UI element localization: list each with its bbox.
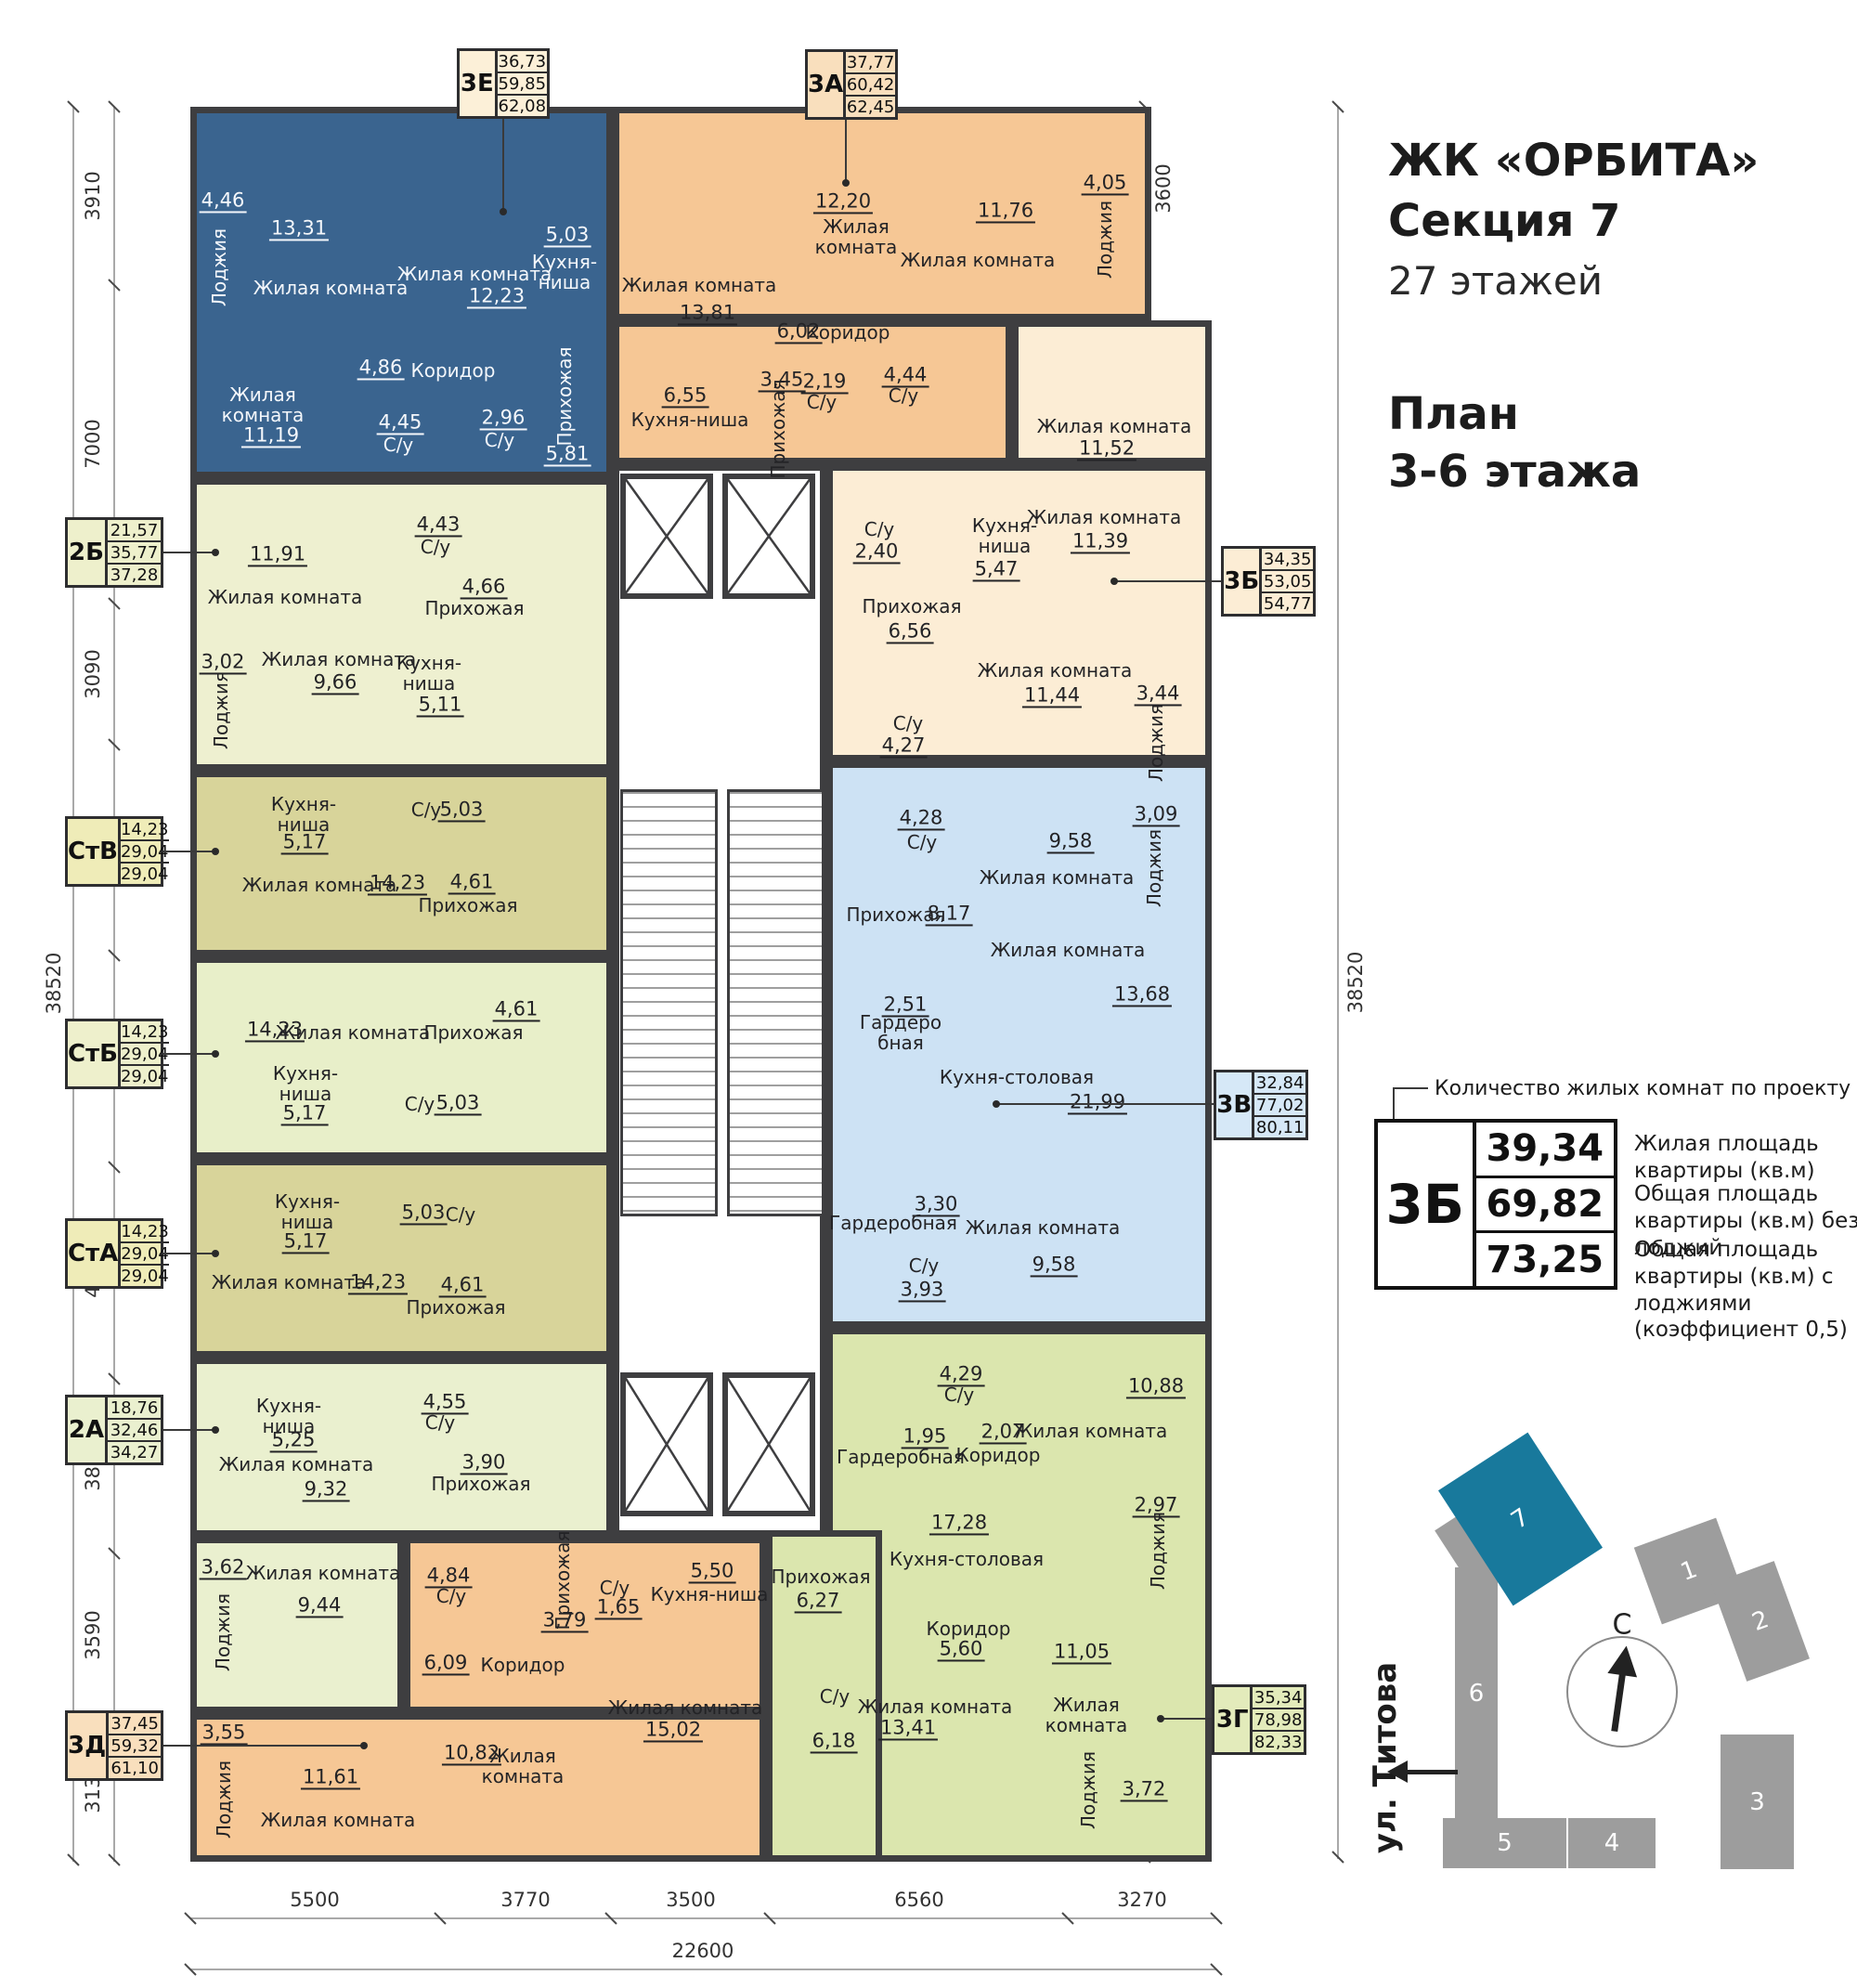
room-name-label: Жилая комната — [478, 1746, 567, 1787]
leader-dot — [212, 1050, 219, 1058]
room-name-label: Гардеробная — [837, 1447, 965, 1467]
room-name-label: С/у — [405, 1094, 435, 1114]
room-name-label: Жилая комната — [1027, 507, 1182, 527]
apt-area-living: 14,23 — [121, 1221, 169, 1243]
site-building-5: 5 — [1443, 1818, 1566, 1868]
room-name-label: Жилая комната — [966, 1217, 1121, 1238]
info-box-3g: 3Г 35,3478,9882,33 — [1212, 1684, 1306, 1755]
room-name-label: Кухня-ниша — [651, 1584, 769, 1605]
room-name-label: Гардеробная — [829, 1213, 957, 1233]
room-area-label: 4,43 — [415, 513, 462, 537]
room-name-label: Прихожая — [418, 895, 517, 916]
apt-area-total: 29,04 — [121, 1066, 169, 1086]
apt-code: СтА — [68, 1221, 121, 1286]
room-area-label: 5,17 — [281, 1102, 329, 1125]
room-name-label: Лоджия — [1095, 201, 1115, 279]
apt-area-total: 62,08 — [498, 96, 547, 116]
dim-chain-bottom-outer — [190, 1969, 1216, 1970]
dim-chain-bottom-inner — [190, 1917, 1216, 1919]
room-name-label: Жилая комната — [858, 1696, 1013, 1717]
room-name-label: С/у — [446, 1204, 476, 1225]
dim-label: 3600 — [1152, 163, 1175, 213]
section-title: Секция 7 — [1388, 195, 1621, 247]
room-name-label: Лоджия — [214, 1761, 234, 1839]
room-name-label: Жилая комната — [211, 384, 315, 425]
apt-area-no-loggia: 59,85 — [498, 73, 547, 96]
room-name-label: Гардеробная — [858, 1012, 943, 1053]
room-name-label: С/у — [807, 392, 838, 412]
room-name-label: Жилая комната — [901, 250, 1056, 270]
info-box-3a: 3А 37,7760,4262,45 — [805, 49, 898, 120]
room-area-label: 5,25 — [270, 1429, 318, 1452]
dim-chain-right-outer — [1337, 107, 1339, 1859]
room-name-label: С/у — [907, 832, 938, 852]
info-box-3e: 3Е 36,7359,8562,08 — [457, 48, 550, 119]
room-area-label: 4,27 — [880, 734, 928, 758]
room-name-label: Жилая комната — [212, 1272, 367, 1293]
apartment-sta-area — [190, 1159, 613, 1358]
leader-line — [163, 1745, 362, 1747]
room-name-label: С/у — [383, 435, 414, 455]
apt-area-no-loggia: 59,32 — [109, 1735, 161, 1758]
room-name-label: Жилая комната — [276, 1022, 431, 1043]
room-name-label: Жилая комната — [246, 1563, 401, 1583]
apt-area-no-loggia: 29,04 — [121, 1243, 169, 1266]
room-name-label: С/у — [436, 1586, 467, 1606]
apt-area-total: 34,27 — [108, 1442, 161, 1462]
dim-label: 5500 — [290, 1889, 339, 1911]
dim-chain-left-inner — [113, 107, 115, 1862]
plan-title-line2: 3-6 этажа — [1388, 446, 1641, 498]
room-area-label: 5,47 — [973, 558, 1020, 581]
legend-label-living: Жилая площадь квартиры (кв.м) — [1634, 1131, 1857, 1185]
room-name-label: Кухня-столовая — [940, 1067, 1094, 1087]
room-name-label: Жилая комната — [219, 1454, 374, 1475]
room-name-label: Лоджия — [1078, 1751, 1098, 1829]
room-name-label: Прихожая — [771, 1566, 870, 1587]
room-name-label: Прихожая — [424, 598, 524, 618]
apt-code: 3Е — [460, 51, 498, 116]
apartment-stv-area — [190, 771, 613, 956]
project-title: ЖК «ОРБИТА» — [1388, 135, 1759, 187]
room-name-label: Прихожая — [862, 596, 961, 617]
room-area-label: 11,44 — [1022, 684, 1082, 708]
legend-callout-line — [1393, 1087, 1395, 1121]
apt-area-living: 34,35 — [1262, 549, 1313, 571]
apt-code: 2А — [68, 1397, 108, 1462]
room-name-label: С/у — [944, 1384, 975, 1405]
legend-example-value: 39,34 — [1476, 1123, 1614, 1178]
room-area-label: 10,88 — [1126, 1375, 1186, 1398]
info-box-stb: СтБ 14,2329,0429,04 — [65, 1019, 163, 1089]
room-area-label: 4,61 — [439, 1274, 487, 1297]
dim-total-right: 38520 — [1344, 952, 1367, 1014]
site-building-label: 3 — [1749, 1788, 1765, 1816]
floors-subtitle: 27 этажей — [1388, 258, 1603, 304]
legend-example-code: 3Б — [1378, 1123, 1476, 1286]
room-name-label: Коридор — [411, 360, 496, 381]
dim-label: 3910 — [82, 171, 104, 220]
street-arrow-icon — [1387, 1761, 1408, 1783]
room-area-label: 9,58 — [1047, 830, 1095, 853]
room-area-label: 13,81 — [678, 302, 737, 325]
apt-area-no-loggia: 53,05 — [1262, 571, 1313, 593]
room-name-label: С/у — [893, 713, 924, 734]
room-area-label: 3,55 — [201, 1722, 248, 1745]
room-area-label: 12,20 — [813, 190, 873, 214]
room-name-label: Лоджия — [1146, 704, 1166, 782]
apartment-stb-area — [190, 956, 613, 1159]
room-area-label: 9,58 — [1031, 1254, 1078, 1277]
room-area-label: 3,72 — [1121, 1778, 1168, 1801]
room-area-label: 5,03 — [435, 1092, 482, 1115]
room-area-label: 5,17 — [281, 831, 329, 854]
site-building-label: 1 — [1677, 1555, 1701, 1587]
room-area-label: 6,27 — [795, 1590, 842, 1613]
leader-line — [998, 1103, 1214, 1105]
dim-label: 3770 — [500, 1889, 550, 1911]
room-name-label: Кухня-ниша — [267, 1063, 344, 1104]
apt-code: СтВ — [68, 819, 121, 884]
leader-line — [502, 119, 504, 210]
room-area-label: 4,45 — [377, 411, 424, 435]
apt-area-total: 29,04 — [121, 864, 169, 884]
apt-code: 3В — [1216, 1072, 1254, 1137]
dim-chain-left-outer — [72, 107, 74, 1862]
site-building-3: 3 — [1721, 1735, 1794, 1869]
room-name-label: Жилая комната — [980, 867, 1135, 888]
room-name-label: Кухня-ниша — [388, 653, 470, 694]
room-name-label: Прихожая — [768, 379, 788, 478]
room-area-label: 11,91 — [248, 543, 307, 566]
elevator-shaft-icon — [722, 474, 815, 599]
elevator-shaft-icon — [620, 474, 713, 599]
room-area-label: 1,65 — [595, 1596, 643, 1619]
dim-label: 3090 — [82, 649, 104, 698]
room-name-label: Лоджия — [1148, 1512, 1168, 1590]
leader-line — [1116, 580, 1221, 582]
room-area-label: 11,05 — [1052, 1641, 1111, 1664]
room-name-label: Прихожая — [406, 1297, 505, 1318]
site-building-label: 7 — [1506, 1503, 1534, 1535]
legend-callout-text: Количество жилых комнат по проекту и бук… — [1435, 1077, 1857, 1100]
apt-code: 3Г — [1214, 1687, 1253, 1752]
leader-line — [163, 1053, 214, 1055]
apt-code: 3А — [808, 52, 846, 117]
apt-area-living: 14,23 — [121, 819, 169, 841]
room-area-label: 5,17 — [282, 1230, 330, 1254]
legend-example-value: 73,25 — [1476, 1233, 1614, 1286]
compass-needle-icon — [1592, 1644, 1648, 1736]
room-area-label: 4,28 — [898, 807, 945, 830]
room-area-label: 5,03 — [438, 799, 486, 822]
room-area-label: 4,46 — [200, 189, 247, 213]
leader-dot — [360, 1742, 368, 1749]
apt-area-no-loggia: 29,04 — [121, 1044, 169, 1066]
room-area-label: 5,11 — [417, 694, 464, 717]
legend-example-box: 3Б 39,34 69,82 73,25 — [1374, 1119, 1617, 1290]
apt-area-no-loggia: 78,98 — [1253, 1709, 1304, 1732]
apt-area-living: 37,45 — [109, 1713, 161, 1735]
dim-label: 3500 — [666, 1889, 715, 1911]
leader-dot — [1110, 578, 1118, 585]
room-name-label: Кухня-ниша — [269, 1191, 345, 1232]
room-area-label: 11,52 — [1077, 437, 1136, 461]
apt-code: 2Б — [68, 520, 108, 585]
site-building-label: 2 — [1748, 1605, 1773, 1637]
apt-area-no-loggia: 35,77 — [108, 542, 161, 565]
leader-dot — [842, 179, 850, 187]
leader-dot — [212, 549, 219, 556]
room-area-label: 6,09 — [422, 1652, 470, 1675]
room-area-label: 4,86 — [357, 357, 405, 380]
room-area-label: 2,07 — [980, 1421, 1027, 1444]
room-name-label: Жилая комната — [991, 940, 1146, 960]
room-area-label: 3,09 — [1133, 803, 1180, 826]
dim-label: 7000 — [82, 419, 104, 468]
room-name-label: С/у — [485, 430, 515, 450]
leader-dot — [1157, 1715, 1164, 1722]
leader-line — [163, 1253, 214, 1254]
apt-area-living: 21,57 — [108, 520, 161, 542]
dim-label: 6560 — [894, 1889, 943, 1911]
room-name-label: Коридор — [956, 1445, 1041, 1465]
legend-callout-line — [1393, 1087, 1428, 1089]
room-name-label: Жилая комната — [608, 1697, 763, 1718]
site-building-label: 4 — [1604, 1829, 1620, 1857]
room-area-label: 9,32 — [303, 1478, 350, 1501]
apartment-2a-area — [190, 1358, 613, 1537]
room-name-label: Жилая комната — [812, 216, 901, 257]
room-name-label: Кухня-столовая — [890, 1549, 1044, 1569]
street-arrow-shaft — [1407, 1770, 1458, 1774]
apt-area-living: 18,76 — [108, 1397, 161, 1420]
room-name-label: Жилая комната — [1042, 1695, 1131, 1735]
legend-example-value: 69,82 — [1476, 1178, 1614, 1234]
site-building-label: 6 — [1469, 1680, 1485, 1708]
apt-code: 3Д — [68, 1713, 109, 1778]
room-name-label: Жилая комната — [208, 587, 363, 607]
apt-area-living: 14,23 — [121, 1021, 169, 1044]
apt-area-living: 37,77 — [846, 52, 895, 74]
room-area-label: 17,28 — [929, 1512, 989, 1535]
room-name-label: Лоджия — [1144, 829, 1164, 907]
floor-plan-page: 3910 7000 3090 4650 4650 4650 3850 3590 … — [0, 0, 1857, 1988]
room-area-label: 9,66 — [312, 671, 359, 695]
room-name-label: С/у — [820, 1686, 851, 1707]
site-building-6: 6 — [1455, 1567, 1498, 1820]
leader-line — [845, 120, 847, 181]
room-area-label: 3,79 — [541, 1609, 589, 1632]
dim-total-left: 38520 — [43, 953, 65, 1015]
info-box-sta: СтА 14,2329,0429,04 — [65, 1218, 163, 1289]
leader-dot — [993, 1100, 1000, 1108]
info-box-3b: 3Б 34,3553,0554,77 — [1221, 546, 1316, 617]
room-name-label: Лоджия — [213, 1593, 233, 1671]
legend-label-total: Общая площадь квартиры (кв.м) с лоджиями… — [1634, 1237, 1857, 1344]
leader-line — [163, 851, 214, 852]
room-area-label: 14,23 — [368, 872, 427, 895]
room-name-label: Жилая комната — [261, 1810, 416, 1830]
room-area-label: 5,60 — [938, 1638, 985, 1661]
elevator-shaft-icon — [620, 1372, 713, 1516]
room-name-label: Кухня-ниша — [631, 409, 749, 430]
apt-area-total: 80,11 — [1254, 1117, 1305, 1137]
apt-area-no-loggia: 29,04 — [121, 841, 169, 864]
room-area-label: 5,03 — [400, 1202, 448, 1225]
stair-flight-icon — [620, 789, 718, 1216]
room-area-label: 3,90 — [461, 1451, 508, 1475]
room-area-label: 11,19 — [241, 424, 301, 448]
room-area-label: 3,93 — [899, 1279, 946, 1302]
dim-label: 3590 — [82, 1610, 104, 1659]
room-area-label: 2,96 — [480, 407, 527, 430]
apt-area-no-loggia: 77,02 — [1254, 1095, 1305, 1117]
room-name-label: Прихожая — [431, 1474, 530, 1494]
room-area-label: 5,50 — [689, 1560, 736, 1583]
info-box-2b: 2Б 21,5735,7737,28 — [65, 517, 163, 588]
room-name-label: Коридор — [481, 1655, 565, 1675]
dim-label: 3270 — [1117, 1889, 1166, 1911]
leader-line — [163, 552, 214, 553]
leader-dot — [212, 848, 219, 855]
room-name-label: С/у — [864, 519, 895, 539]
room-area-label: 9,44 — [296, 1594, 344, 1618]
room-name-label: С/у — [889, 385, 919, 406]
room-area-label: 12,23 — [467, 285, 526, 308]
site-building-4: 4 — [1568, 1818, 1656, 1868]
apt-area-living: 32,84 — [1254, 1072, 1305, 1095]
room-name-label: Кухня-ниша — [524, 252, 605, 292]
leader-dot — [212, 1250, 219, 1257]
room-name-label: Коридор — [927, 1618, 1011, 1639]
room-name-label: Жилая комната — [978, 660, 1133, 681]
leader-dot — [212, 1426, 219, 1434]
room-area-label: 3,62 — [200, 1556, 247, 1579]
room-area-label: 4,05 — [1082, 172, 1129, 195]
room-name-label: Жилая комната — [253, 278, 409, 298]
dim-total-bottom: 22600 — [672, 1940, 734, 1962]
room-area-label: 11,61 — [301, 1766, 360, 1789]
room-area-label: 6,55 — [662, 384, 709, 408]
apt-area-total: 54,77 — [1262, 593, 1313, 614]
apt-area-no-loggia: 32,46 — [108, 1420, 161, 1442]
leader-line — [163, 1429, 214, 1431]
info-box-3d: 3Д 37,4559,3261,10 — [65, 1710, 163, 1781]
room-name-label: Жилая комната — [1013, 1421, 1168, 1441]
apt-area-living: 35,34 — [1253, 1687, 1304, 1709]
apt-area-total: 37,28 — [108, 565, 161, 585]
apt-area-total: 61,10 — [109, 1758, 161, 1778]
room-area-label: 2,40 — [853, 540, 901, 564]
room-area-label: 13,41 — [878, 1717, 938, 1740]
info-box-stv: СтВ 14,2329,0429,04 — [65, 816, 163, 887]
leader-line — [1162, 1718, 1212, 1720]
apt-code: 3Б — [1224, 549, 1262, 614]
room-area-label: 11,76 — [976, 200, 1035, 223]
room-area-label: 3,44 — [1135, 682, 1182, 706]
room-area-label: 5,03 — [544, 224, 591, 247]
apt-area-total: 29,04 — [121, 1266, 169, 1286]
site-building-label: 5 — [1497, 1829, 1513, 1857]
room-area-label: 11,39 — [1071, 530, 1130, 553]
room-area-label: 4,66 — [461, 576, 508, 599]
room-name-label: Кухня-ниша — [266, 794, 342, 835]
elevator-shaft-icon — [722, 1372, 815, 1516]
room-area-label: 13,68 — [1112, 983, 1172, 1007]
compass-north-label: С — [1613, 1609, 1632, 1642]
plan-title-line1: План — [1388, 388, 1519, 440]
room-name-label: С/у — [411, 799, 442, 820]
room-area-label: 6,56 — [887, 620, 934, 643]
room-name-label: С/у — [425, 1412, 456, 1433]
street-name-label: ул. Титова — [1367, 1662, 1404, 1853]
apartment-2b-area — [190, 478, 613, 771]
room-area-label: 15,02 — [643, 1719, 703, 1742]
apt-area-total: 62,45 — [846, 97, 895, 117]
room-area-label: 14,23 — [348, 1271, 408, 1294]
leader-dot — [500, 208, 507, 215]
room-area-label: 6,18 — [811, 1730, 858, 1753]
room-name-label: Лоджия — [211, 671, 231, 749]
room-name-label: Прихожая — [423, 1022, 523, 1043]
room-name-label: Лоджия — [209, 228, 229, 306]
apt-area-living: 36,73 — [498, 51, 547, 73]
apt-code: СтБ — [68, 1021, 121, 1086]
room-name-label: С/у — [909, 1255, 940, 1276]
apt-area-total: 82,33 — [1253, 1732, 1304, 1752]
room-name-label: Жилая комната — [622, 275, 777, 295]
room-name-label: Жилая комната — [1037, 416, 1192, 436]
site-building-2: 2 — [1711, 1561, 1810, 1682]
info-box-2a: 2А 18,7632,4634,27 — [65, 1395, 163, 1465]
room-name-label: Прихожая — [554, 346, 575, 446]
stair-flight-icon — [727, 789, 825, 1216]
apt-area-no-loggia: 60,42 — [846, 74, 895, 97]
room-area-label: 13,31 — [269, 217, 329, 240]
room-area-label: 4,61 — [448, 871, 496, 894]
room-area-label: 5,81 — [544, 443, 591, 466]
room-area-label: 4,61 — [493, 998, 540, 1021]
info-box-3v: 3В 32,8477,0280,11 — [1214, 1070, 1308, 1140]
room-name-label: С/у — [421, 537, 451, 557]
room-area-label: 8,17 — [926, 903, 973, 926]
room-name-label: Коридор — [806, 322, 890, 343]
